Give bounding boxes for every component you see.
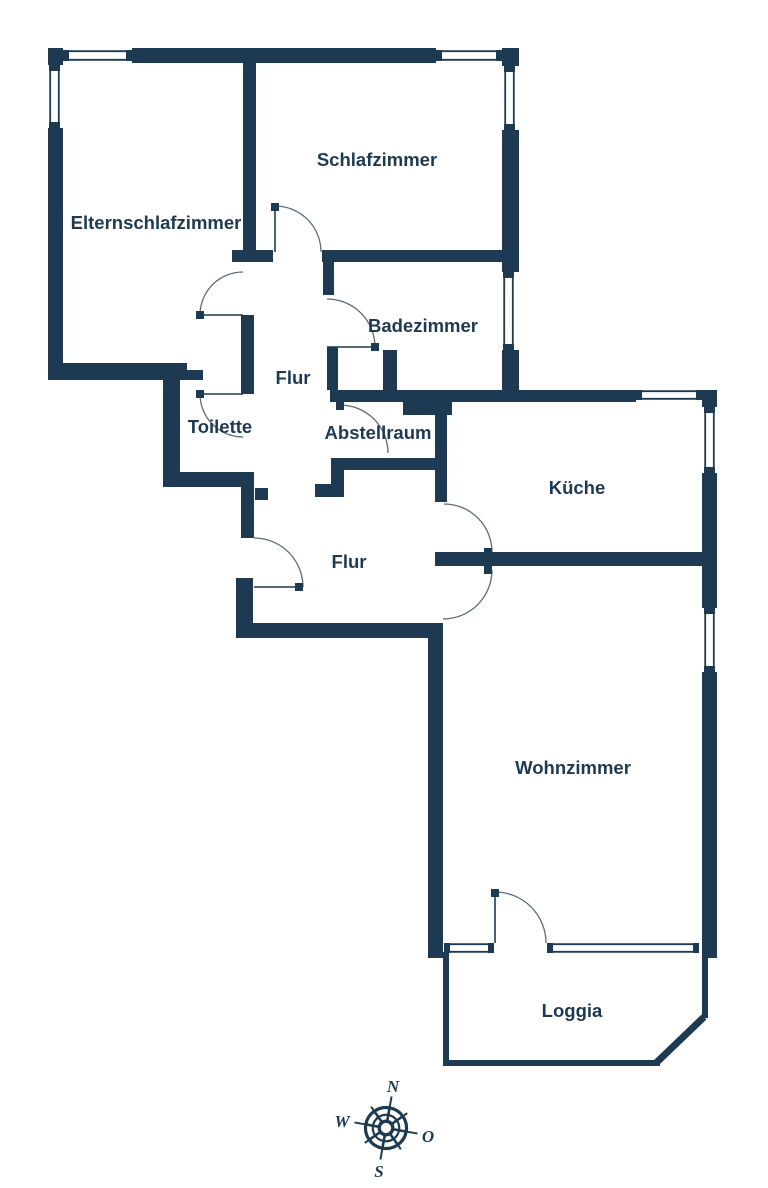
wall-segment — [435, 552, 702, 566]
wall-segment — [331, 458, 438, 470]
door-hinge-tick — [484, 548, 492, 556]
window-icon — [436, 50, 502, 61]
wall-segment — [132, 48, 436, 63]
window-icon — [704, 407, 715, 473]
room-label-kueche: Küche — [549, 477, 606, 498]
room-label-flur-oben: Flur — [276, 367, 311, 388]
room-label-badezimmer: Badezimmer — [368, 315, 478, 336]
wall-segment — [48, 128, 63, 380]
room-label-schlafzimmer: Schlafzimmer — [317, 149, 437, 170]
wall-segment — [48, 48, 63, 65]
wall-segment — [243, 63, 256, 250]
wall-segment — [502, 130, 519, 272]
loggia-wall-segment — [443, 1060, 660, 1066]
door-hinge-tick — [196, 311, 204, 319]
wall-segment — [163, 370, 203, 380]
floor-plan-page: ElternschlafzimmerSchlafzimmerBadezimmer… — [0, 0, 768, 1188]
window-icon — [704, 608, 715, 672]
door-hinge-tick — [371, 343, 379, 351]
wall-segment — [163, 380, 180, 487]
wall-segment — [383, 350, 397, 390]
wall-segment — [163, 472, 253, 487]
door-hinge-tick — [336, 402, 344, 410]
door-hinge-tick — [196, 390, 204, 398]
wall-segment — [702, 390, 717, 407]
wall-segment — [403, 402, 452, 415]
wall-segment — [237, 623, 443, 638]
wall-segment — [241, 315, 254, 394]
wall-segment — [331, 470, 344, 497]
room-label-flur-unten: Flur — [332, 551, 367, 572]
loggia-wall-segment — [443, 952, 449, 1066]
door-hinge-tick — [295, 583, 303, 591]
wall-segment — [323, 262, 334, 295]
room-label-elternschlafzimmer: Elternschlafzimmer — [71, 212, 242, 233]
window-icon — [547, 943, 699, 953]
loggia-wall-segment — [702, 958, 708, 1018]
door-hinge-tick — [484, 566, 492, 574]
window-icon — [503, 272, 514, 350]
plan-background — [0, 0, 768, 1188]
wall-segment — [702, 672, 717, 958]
window-icon — [444, 943, 494, 953]
wall-segment — [322, 250, 519, 262]
window-icon — [636, 390, 702, 400]
compass-label-east: O — [422, 1127, 434, 1146]
wall-segment — [315, 484, 331, 497]
wall-segment — [502, 48, 519, 66]
room-label-wohnzimmer: Wohnzimmer — [515, 757, 631, 778]
compass-label-north: N — [386, 1077, 400, 1096]
window-icon — [63, 50, 132, 61]
window-icon — [504, 66, 515, 130]
wall-segment — [428, 623, 443, 958]
wall-segment — [232, 250, 273, 262]
wall-segment — [241, 472, 254, 538]
room-label-abstellraum: Abstellraum — [325, 422, 432, 443]
wall-segment — [330, 390, 636, 402]
window-icon — [49, 65, 60, 128]
floor-plan-drawing: ElternschlafzimmerSchlafzimmerBadezimmer… — [0, 0, 768, 1188]
door-hinge-tick — [271, 203, 279, 211]
compass-label-south: S — [374, 1162, 383, 1181]
compass-label-west: W — [334, 1112, 351, 1131]
wall-segment — [702, 473, 717, 608]
door-hinge-tick — [491, 889, 499, 897]
room-label-toilette: Toilette — [188, 416, 252, 437]
wall-segment — [327, 347, 338, 390]
wall-segment — [255, 488, 268, 500]
room-label-loggia: Loggia — [542, 1000, 603, 1021]
